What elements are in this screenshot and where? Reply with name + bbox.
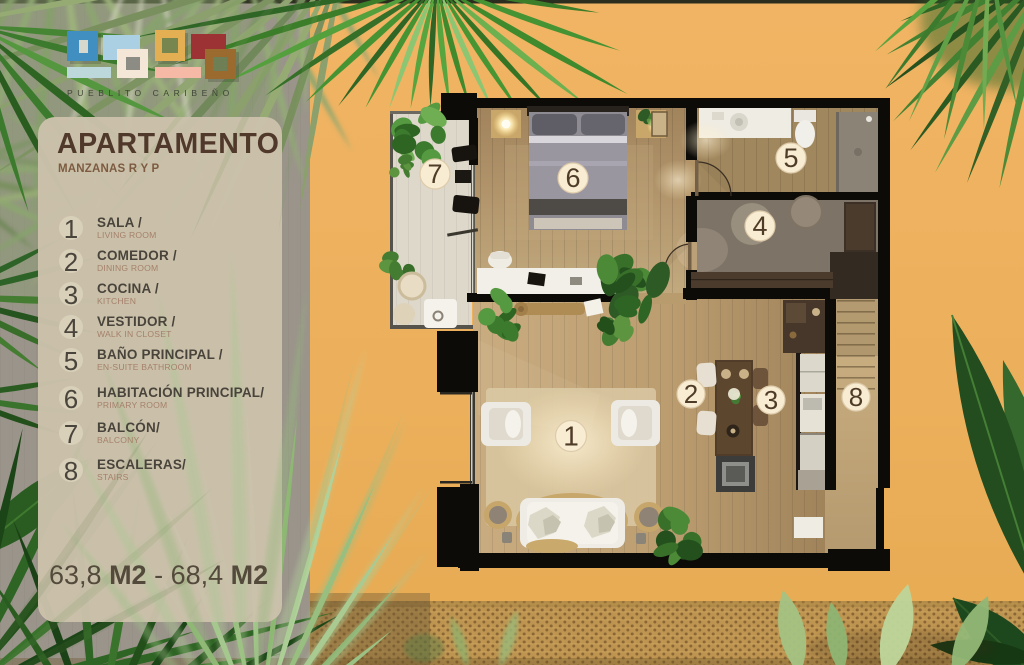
- svg-text:1: 1: [563, 421, 579, 452]
- svg-text:8: 8: [849, 382, 863, 412]
- svg-text:COMEDOR /: COMEDOR /: [97, 248, 177, 263]
- svg-text:ESCALERAS/: ESCALERAS/: [97, 457, 186, 472]
- svg-text:3: 3: [764, 385, 778, 415]
- svg-text:WALK IN CLOSET: WALK IN CLOSET: [97, 329, 172, 339]
- svg-text:EN-SUITE BATHROOM: EN-SUITE BATHROOM: [97, 362, 192, 372]
- svg-text:BALCONY: BALCONY: [97, 435, 140, 445]
- svg-text:LIVING ROOM: LIVING ROOM: [97, 230, 157, 240]
- svg-text:4: 4: [752, 211, 767, 241]
- svg-text:6: 6: [64, 384, 78, 414]
- svg-text:2: 2: [684, 379, 698, 409]
- svg-text:7: 7: [64, 419, 78, 449]
- svg-text:COCINA /: COCINA /: [97, 281, 159, 296]
- svg-text:5: 5: [783, 143, 798, 173]
- svg-text:5: 5: [64, 346, 78, 376]
- svg-text:6: 6: [565, 163, 580, 193]
- svg-text:BAÑO PRINCIPAL /: BAÑO PRINCIPAL /: [97, 347, 223, 362]
- svg-text:PUEBLITO CARIBEÑO: PUEBLITO CARIBEÑO: [67, 88, 234, 98]
- svg-text:BALCÓN/: BALCÓN/: [97, 420, 160, 435]
- svg-text:HABITACIÓN PRINCIPAL/: HABITACIÓN PRINCIPAL/: [97, 385, 264, 400]
- svg-text:VESTIDOR /: VESTIDOR /: [97, 314, 176, 329]
- svg-text:APARTAMENTO: APARTAMENTO: [57, 128, 279, 160]
- svg-text:3: 3: [64, 280, 78, 310]
- svg-text:8: 8: [64, 456, 78, 486]
- svg-text:4: 4: [64, 313, 78, 343]
- svg-text:PRIMARY ROOM: PRIMARY ROOM: [97, 400, 167, 410]
- svg-text:1: 1: [64, 214, 78, 244]
- svg-text:STAIRS: STAIRS: [97, 472, 129, 482]
- svg-text:7: 7: [427, 159, 442, 189]
- svg-text:DINING ROOM: DINING ROOM: [97, 263, 158, 273]
- svg-text:63,8 M2 - 68,4 M2: 63,8 M2 - 68,4 M2: [49, 560, 268, 590]
- svg-text:MANZANAS R Y P: MANZANAS R Y P: [58, 163, 160, 175]
- svg-text:SALA /: SALA /: [97, 215, 142, 230]
- svg-text:2: 2: [64, 247, 78, 277]
- svg-text:KITCHEN: KITCHEN: [97, 296, 136, 306]
